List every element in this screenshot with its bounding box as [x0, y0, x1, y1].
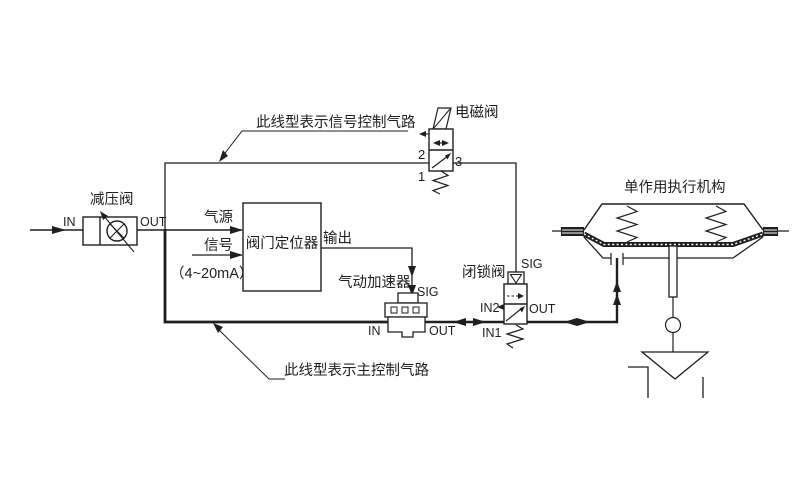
booster-lower-body [388, 317, 425, 337]
actuator-right-flange [763, 227, 778, 236]
actuator-left-flange [561, 227, 584, 236]
solenoid-port2-label: 2 [418, 147, 425, 162]
spring-icon [433, 171, 448, 194]
signal-line-legend-text: 此线型表示信号控制气路 [256, 114, 416, 131]
valve-plug-triangle [642, 352, 708, 379]
lockup-in2-label: IN2 [480, 301, 500, 315]
flow-arrow-up-icon [613, 281, 621, 292]
pressure-reducing-valve: 减压阀 IN OUT [63, 191, 167, 252]
exhaust-arrow-icon [419, 131, 426, 137]
regulator-body [83, 217, 137, 245]
lockup-valve: 闭锁阀 SIG IN2 OUT IN1 [462, 257, 556, 348]
booster-in-label: IN [368, 324, 381, 338]
leader-arrow-icon [213, 323, 223, 333]
pneumatic-booster: SIG IN OUT 气动加速器 [338, 274, 456, 338]
flow-arrow-right-icon [577, 318, 590, 326]
signal-line-legend: 此线型表示信号控制气路 [219, 114, 416, 162]
positioner-label: 阀门定位器 [246, 235, 319, 252]
regulator-in-label: IN [63, 215, 76, 229]
solenoid-port3-label: 3 [455, 154, 462, 169]
solenoid-port1-label: 1 [418, 169, 425, 184]
flow-arrow-right-icon [473, 318, 486, 326]
stem-coupling-ball [666, 318, 681, 333]
diagram-canvas: 减压阀 IN OUT 气源 信号 （4~20mA） 阀门定位器 输出 [0, 0, 800, 500]
actuator-top-shell [584, 204, 763, 230]
pneumatic-control-diagram: 减压阀 IN OUT 气源 信号 （4~20mA） 阀门定位器 输出 [0, 0, 800, 500]
signal-label: 信号 [204, 237, 233, 254]
actuator-stem [669, 246, 677, 297]
actuator-label: 单作用执行机构 [624, 179, 726, 196]
booster-sig-label: SIG [417, 285, 439, 299]
spring-icon [617, 206, 637, 242]
lockup-label: 闭锁阀 [462, 264, 506, 281]
spring-icon [507, 325, 523, 348]
main-legend-leader [216, 327, 285, 379]
main-line-legend-text: 此线型表示主控制气路 [284, 362, 429, 379]
signal-legend-leader [222, 131, 408, 157]
solenoid-label: 电磁阀 [455, 104, 499, 121]
flow-arrow-up-icon [613, 294, 621, 305]
booster-out-label: OUT [429, 324, 456, 338]
regulator-out-label: OUT [140, 215, 167, 229]
positioner-output-label: 输出 [323, 230, 352, 247]
flow-arrow-left-icon [564, 318, 577, 326]
regulator-label: 减压阀 [90, 191, 134, 208]
spring-icon [706, 206, 726, 242]
solenoid-valve: 电磁阀 2 3 1 [418, 104, 499, 194]
lockup-sig-label: SIG [521, 257, 543, 271]
signal-line-solenoid-to-lockup [453, 163, 516, 272]
booster-cap [398, 293, 418, 303]
flow-arrow-right-icon [230, 226, 243, 234]
lockup-in1-label: IN1 [482, 326, 502, 340]
signal-range-label: （4~20mA） [170, 265, 253, 282]
booster-label: 气动加速器 [338, 274, 411, 291]
leader-arrow-icon [219, 150, 228, 162]
single-acting-actuator: 单作用执行机构 [552, 179, 789, 398]
lockup-out-label: OUT [529, 302, 556, 316]
supply-label: 气源 [204, 209, 233, 226]
positioner-inputs: 气源 信号 （4~20mA） [170, 209, 253, 282]
